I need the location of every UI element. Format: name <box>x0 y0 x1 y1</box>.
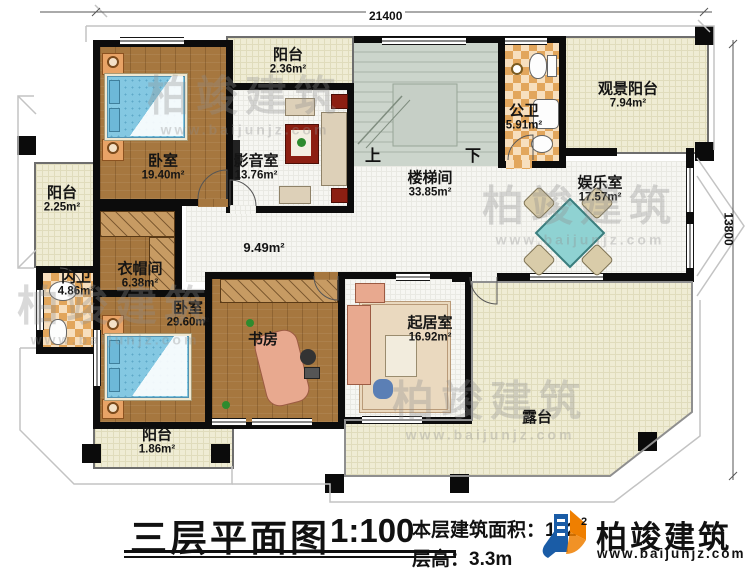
bed <box>104 333 192 401</box>
column <box>638 432 657 451</box>
door-gap <box>230 205 256 214</box>
dimension-top: 21400 <box>366 9 405 23</box>
nightstand <box>102 399 124 419</box>
nightstand <box>102 139 124 161</box>
stairs-up-label: 上 <box>365 142 381 166</box>
blanket <box>373 379 393 399</box>
door-gap <box>198 199 228 207</box>
label-study: 书房 <box>248 332 278 348</box>
sofa <box>347 305 371 385</box>
wall <box>452 273 470 282</box>
window <box>36 290 44 330</box>
toilet <box>529 53 547 79</box>
label-living: 起居室 16.92m² <box>407 316 452 345</box>
wall <box>603 273 692 282</box>
nightstand <box>102 315 124 335</box>
nightstand <box>102 53 124 75</box>
armchair <box>355 283 385 303</box>
sofa <box>321 112 347 186</box>
title-underline <box>124 550 456 553</box>
label-terrace: 露台 <box>522 410 552 426</box>
label-inner-bath: 内卫 4.86m² <box>58 270 94 299</box>
title-underline-2 <box>124 556 456 558</box>
plan-scale: 1:100 <box>330 512 414 550</box>
sink <box>531 135 553 153</box>
plant-icon <box>222 401 230 409</box>
office-chair <box>300 349 316 365</box>
armchair <box>279 186 311 204</box>
window <box>93 330 101 386</box>
toilet <box>49 319 67 345</box>
bed <box>104 73 188 141</box>
column <box>695 142 714 161</box>
side-table <box>331 94 348 109</box>
brand-logo-icon <box>538 506 590 560</box>
label-stairs: 楼梯间 33.85m² <box>407 171 452 200</box>
room-living <box>338 272 472 424</box>
label-corridor-area: 9.49m² <box>243 241 284 255</box>
label-balcony-top: 阳台 2.36m² <box>270 48 306 77</box>
floor-height-line: 层高：3.3m <box>412 544 512 571</box>
column <box>17 136 36 155</box>
window <box>252 418 312 426</box>
window <box>686 168 694 212</box>
label-view-balcony: 观景阳台 7.94m² <box>598 82 658 111</box>
wall <box>497 273 530 282</box>
label-balcony-left: 阳台 2.25m² <box>44 186 80 215</box>
dimension-right: 13800 <box>722 212 736 245</box>
label-rec-room: 娱乐室 17.57m² <box>577 176 622 205</box>
window <box>120 37 184 45</box>
window <box>505 37 547 45</box>
label-cloak: 衣帽间 6.38m² <box>117 262 162 291</box>
plant-icon <box>246 319 254 327</box>
label-balcony-bottom: 阳台 1.86m² <box>139 428 175 457</box>
column <box>211 444 230 463</box>
toilet-tank <box>547 55 557 77</box>
window <box>382 37 466 45</box>
wardrobe <box>100 211 175 237</box>
room-media <box>226 83 354 213</box>
label-bedroom-2: 卧室 29.60m² <box>167 301 210 330</box>
room-study <box>205 272 345 429</box>
faucet-icon <box>511 63 523 75</box>
column <box>695 26 714 45</box>
window <box>362 416 422 424</box>
column <box>325 474 344 493</box>
window <box>396 273 430 281</box>
wardrobe <box>220 279 338 303</box>
plan-title: 三层平面图 <box>130 508 330 562</box>
wall <box>559 148 617 156</box>
window <box>686 224 694 268</box>
stairs-down-label: 下 <box>465 142 481 166</box>
door-gap <box>506 160 532 169</box>
column <box>450 474 469 493</box>
column <box>82 444 101 463</box>
coffee-table <box>285 124 319 164</box>
label-media: 影音室 13.76m² <box>233 154 278 183</box>
side-table <box>331 188 348 203</box>
window <box>212 418 246 426</box>
floor-plan-canvas: 卧室 19.40m² 阳台 2.36m² 影音室 13.76m² 楼梯间 33.… <box>0 0 750 573</box>
floor-area-sup: 2 <box>581 516 587 528</box>
monitor <box>304 367 320 379</box>
room-balcony-left <box>34 162 98 268</box>
label-public-bath: 公卫 5.91m² <box>506 104 542 133</box>
armchair <box>285 98 315 116</box>
label-bedroom-1: 卧室 19.40m² <box>142 154 185 183</box>
brand-site: www.baijunjz.com <box>597 546 746 561</box>
door-gap <box>314 272 338 280</box>
